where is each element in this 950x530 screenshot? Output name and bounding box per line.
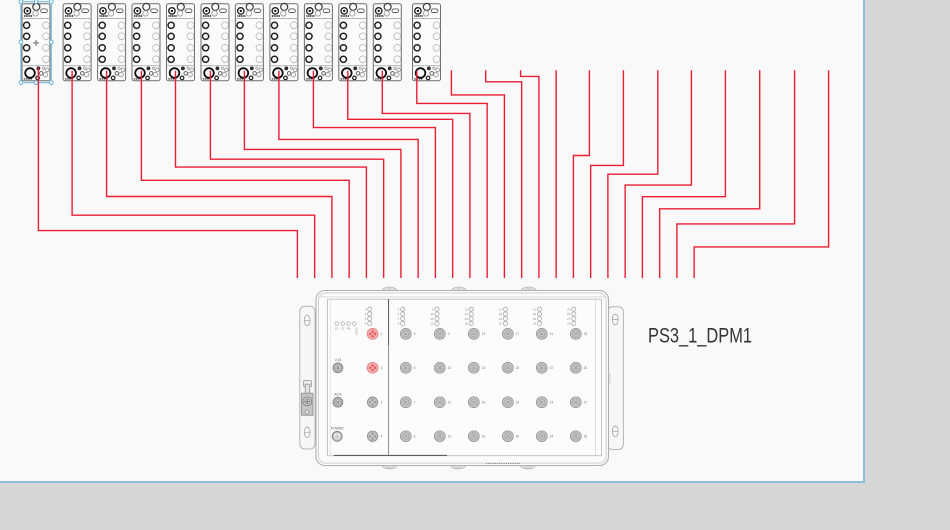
svg-text:15: 15 <box>482 401 486 405</box>
svg-text:14: 14 <box>464 312 468 316</box>
svg-text:26: 26 <box>584 366 588 370</box>
svg-text:FAULT: FAULT <box>354 328 358 336</box>
svg-text:6: 6 <box>414 366 416 370</box>
svg-text:POWER: POWER <box>331 427 344 431</box>
svg-text:ACA: ACA <box>334 392 342 396</box>
svg-text:7: 7 <box>414 401 416 405</box>
svg-text:25: 25 <box>567 307 571 311</box>
svg-text:26: 26 <box>567 312 571 316</box>
svg-text:21: 21 <box>533 307 537 311</box>
svg-text:20: 20 <box>516 435 520 439</box>
svg-text:16: 16 <box>464 322 468 326</box>
svg-text:1: 1 <box>381 332 383 336</box>
svg-text:22: 22 <box>550 366 554 370</box>
svg-text:28: 28 <box>584 435 588 439</box>
svg-text:10: 10 <box>430 312 434 316</box>
svg-text:19: 19 <box>499 317 503 321</box>
svg-text:13: 13 <box>464 307 468 311</box>
svg-text:12: 12 <box>430 322 434 326</box>
svg-text:PS3_1_DPM1: PS3_1_DPM1 <box>648 325 752 348</box>
svg-text:8: 8 <box>414 435 416 439</box>
svg-text:FM: FM <box>347 327 351 331</box>
svg-text:23: 23 <box>550 401 554 405</box>
svg-text:13: 13 <box>482 332 486 336</box>
svg-text:11: 11 <box>430 317 433 321</box>
svg-text:17: 17 <box>516 332 520 336</box>
svg-text:22: 22 <box>533 312 537 316</box>
svg-text:18: 18 <box>516 366 520 370</box>
svg-text:15: 15 <box>464 317 468 321</box>
svg-text:28: 28 <box>567 322 571 326</box>
svg-text:P1: P1 <box>335 327 339 331</box>
svg-text:23: 23 <box>533 317 537 321</box>
svg-text:24: 24 <box>533 322 537 326</box>
svg-text:3: 3 <box>381 401 383 405</box>
svg-text:10: 10 <box>448 366 452 370</box>
svg-text:19: 19 <box>516 401 520 405</box>
svg-text:20: 20 <box>499 322 503 326</box>
svg-text:P2: P2 <box>341 327 345 331</box>
svg-text:27: 27 <box>584 401 588 405</box>
svg-text:2: 2 <box>381 366 383 370</box>
svg-text:17: 17 <box>499 307 503 311</box>
svg-text:18: 18 <box>499 312 503 316</box>
svg-text:16: 16 <box>482 435 486 439</box>
svg-text:5: 5 <box>414 332 416 336</box>
svg-text:11: 11 <box>448 401 452 405</box>
svg-text:V.24: V.24 <box>335 358 342 362</box>
svg-text:4: 4 <box>381 435 383 439</box>
svg-text:14: 14 <box>482 366 486 370</box>
svg-text:12: 12 <box>448 435 452 439</box>
svg-text:25: 25 <box>584 332 588 336</box>
svg-text:21: 21 <box>550 332 554 336</box>
svg-text:24: 24 <box>550 435 554 439</box>
svg-text:27: 27 <box>567 317 571 321</box>
svg-text:9: 9 <box>448 332 450 336</box>
